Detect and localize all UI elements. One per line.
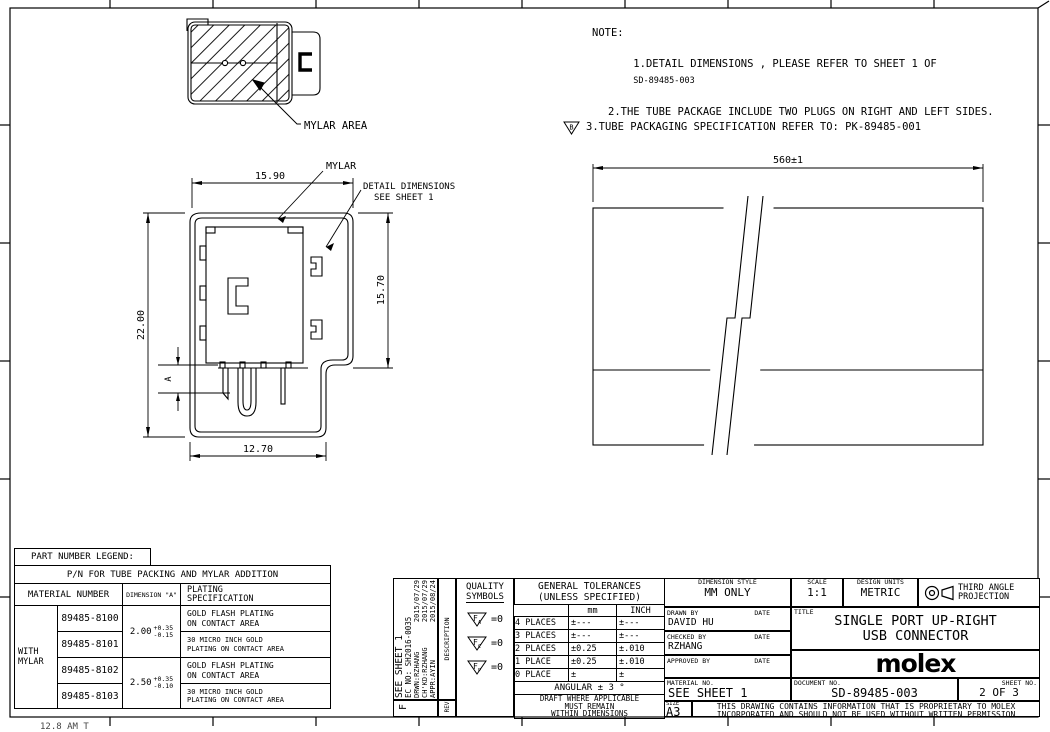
dimension-style-cell: DIMENSION STYLE MM ONLY xyxy=(664,578,791,607)
size-cell: SIZE A3 xyxy=(664,701,692,717)
document-no-value: SD-89485-003 xyxy=(792,687,957,699)
legend-plating-2: GOLD FLASH PLATING ON CONTACT AREA xyxy=(181,658,331,684)
design-units-cell: DESIGN UNITS METRIC xyxy=(843,578,918,607)
design-units-value: METRIC xyxy=(844,586,917,599)
plug-body xyxy=(292,32,320,95)
note-line-2: 2.THE TUBE PACKAGE INCLUDE TWO PLUGS ON … xyxy=(560,105,1038,121)
date-label: DATE xyxy=(754,633,770,641)
size-value: A3 xyxy=(665,707,691,717)
quality-symbols-box: QUALITY SYMBOLS F A =0 F C =0 F P =0 xyxy=(456,578,514,717)
scale-cell: SCALE 1:1 xyxy=(791,578,843,607)
legend-col-plating: PLATING SPECIFICATION xyxy=(181,584,331,606)
legend-part-2: 89485-8102 xyxy=(58,658,123,684)
drawing-title: SINGLE PORT UP-RIGHT USB CONNECTOR xyxy=(792,614,1039,644)
tolerance-col-mm: mm xyxy=(569,605,617,617)
legend-title-box: PART NUMBER LEGEND: xyxy=(14,548,151,566)
date-label: DATE xyxy=(754,657,770,665)
legend-dim-0: 2.00 +0.35-0.15 xyxy=(123,606,181,658)
dimension-style-label: DIMENSION STYLE xyxy=(665,579,790,586)
svg-text:B: B xyxy=(569,123,573,131)
mylar-leader-label: MYLAR xyxy=(326,161,357,172)
revision-desc-label: DESCRIPTION xyxy=(439,580,455,698)
pin-straight xyxy=(281,368,285,404)
revision-value: F xyxy=(397,700,437,714)
plug-c-slot xyxy=(300,54,312,70)
material-no-value: SEE SHEET 1 xyxy=(665,687,790,699)
tol-row-label: 4 PLACES xyxy=(515,617,569,630)
frame-ticks-right xyxy=(1038,125,1050,597)
dimension-style-value: MM ONLY xyxy=(665,586,790,599)
legend-part-0: 89485-8100 xyxy=(58,606,123,632)
revision-rev-label: REV xyxy=(440,700,455,714)
legend-subtitle: P/N FOR TUBE PACKING AND MYLAR ADDITION xyxy=(15,566,331,584)
projection-label: THIRD ANGLE PROJECTION xyxy=(958,584,1014,602)
tolerance-angular: ANGULAR ± 3 ° xyxy=(515,682,665,695)
molex-logo: molex xyxy=(876,649,956,678)
drawn-by-value: DAVID HU xyxy=(665,617,790,628)
mylar-area-view: MYLAR AREA xyxy=(175,10,390,140)
legend-col-material: MATERIAL NUMBER xyxy=(15,584,123,606)
notes-heading: NOTE: xyxy=(560,26,1038,42)
note-line-1-doc: SD-89485-003 xyxy=(633,76,694,86)
rev-ec-no: EC NO: SH2016-0035 xyxy=(405,580,413,698)
tube-view: 560±1 xyxy=(585,150,1000,465)
quality-symbol-row: F P =0 xyxy=(457,660,513,675)
tolerance-title: GENERAL TOLERANCES (UNLESS SPECIFIED) xyxy=(515,579,665,605)
break-mask xyxy=(703,190,775,458)
scale-label: SCALE xyxy=(792,579,842,586)
legend-dim-1: 2.50 +0.35-0.10 xyxy=(123,658,181,709)
legend-part-1: 89485-8101 xyxy=(58,632,123,658)
revision-flag-icon: B xyxy=(563,121,580,135)
projection-cell: THIRD ANGLE PROJECTION xyxy=(918,578,1040,607)
frame-ticks-top xyxy=(110,0,934,8)
date-label: DATE xyxy=(754,609,770,617)
mylar-area-label: MYLAR AREA xyxy=(304,120,368,132)
dim-top-label: 15.90 xyxy=(255,171,285,182)
quality-symbol-row: F C =0 xyxy=(457,636,513,651)
material-no-cell: MATERIAL NO. SEE SHEET 1 xyxy=(664,678,791,701)
quality-symbol-row: F A =0 xyxy=(457,612,513,627)
tube-length-dim: 560±1 xyxy=(773,155,803,166)
scale-value: 1:1 xyxy=(792,586,842,599)
legend-title: PART NUMBER LEGEND: xyxy=(31,552,134,562)
approved-by-cell: APPROVED BYDATE xyxy=(664,655,791,678)
tolerance-col-inch: INCH xyxy=(617,605,665,617)
legend-group: WITH MYLAR xyxy=(15,606,58,709)
pin-tapered xyxy=(223,368,228,399)
front-view: 15.90 22.00 15.70 12.70 A MYLAR DETAIL D… xyxy=(130,150,480,475)
outline-inner xyxy=(195,218,348,432)
dim-bottom-label: 12.70 xyxy=(243,444,273,455)
dim-a-label: A xyxy=(164,376,174,381)
third-angle-projection-icon xyxy=(923,583,955,603)
rev-drwn: DRWN:RZHANG2015/07/29 xyxy=(413,580,421,698)
shell xyxy=(206,227,303,363)
rev-chkd: CH'KD:RZHANG2015/07/29 xyxy=(421,580,429,698)
revision-rotated-content: SEE SHEET 1 EC NO: SH2016-0035 DRWN:RZHA… xyxy=(395,580,437,698)
disclaimer-line-2: INCORPORATED AND SHOULD NOT BE USED WITH… xyxy=(693,711,1039,719)
dim-right-label: 15.70 xyxy=(376,275,387,305)
tube-dim-lines xyxy=(593,164,983,202)
checked-by-value: RZHANG xyxy=(665,641,790,652)
logo-cell: molex xyxy=(791,650,1040,678)
dim-left-label: 22.00 xyxy=(136,310,147,340)
quality-title-1: QUALITY xyxy=(457,582,513,592)
legend-table: P/N FOR TUBE PACKING AND MYLAR ADDITION … xyxy=(14,565,331,709)
tol-row-label: 3 PLACES xyxy=(515,630,569,643)
footer-fragment: 12.8 AM T xyxy=(40,722,89,732)
quality-triangle-icon: F C xyxy=(467,636,489,651)
tol-row-label: 1 PLACE xyxy=(515,656,569,669)
svg-text:P: P xyxy=(478,668,481,674)
quality-triangle-icon: F A xyxy=(467,612,489,627)
engineering-drawing-sheet: { "accent_color": "#000000", "notes": { … xyxy=(0,0,1050,732)
approved-by-label: APPROVED BY xyxy=(667,657,710,665)
detail-label-2: SEE SHEET 1 xyxy=(374,193,434,203)
tol-row-label: 0 PLACE xyxy=(515,669,569,682)
drawn-by-cell: DRAWN BYDATE DAVID HU xyxy=(664,607,791,631)
document-no-cell: DOCUMENT NO. SD-89485-003 xyxy=(791,678,958,701)
legend-plating-3: 30 MICRO INCH GOLD PLATING ON CONTACT AR… xyxy=(181,684,331,709)
legend-part-3: 89485-8103 xyxy=(58,684,123,709)
sheet-no-cell: SHEET NO. 2 OF 3 xyxy=(958,678,1040,701)
center-channel xyxy=(228,278,248,314)
legend-plating-0: GOLD FLASH PLATING ON CONTACT AREA xyxy=(181,606,331,632)
frame-ticks-left xyxy=(0,125,10,597)
tolerance-draft-note: DRAFT WHERE APPLICABLE MUST REMAIN WITHI… xyxy=(515,695,665,719)
design-units-label: DESIGN UNITS xyxy=(844,579,917,586)
legend-plating-1: 30 MICRO INCH GOLD PLATING ON CONTACT AR… xyxy=(181,632,331,658)
notes-block: NOTE: 1.DETAIL DIMENSIONS , PLEASE REFER… xyxy=(560,26,1038,136)
legend-col-dimension: DIMENSION "A" xyxy=(123,584,181,606)
pin-u xyxy=(238,368,256,416)
tol-row-label: 2 PLACES xyxy=(515,643,569,656)
note-line-1: 1.DETAIL DIMENSIONS , PLEASE REFER TO SH… xyxy=(560,42,1038,105)
checked-by-cell: CHECKED BYDATE RZHANG xyxy=(664,631,791,655)
quality-triangle-icon: F P xyxy=(467,660,489,675)
note-line-3: B 3.TUBE PACKAGING SPECIFICATION REFER T… xyxy=(560,120,1038,136)
sheet-no-value: 2 OF 3 xyxy=(959,687,1039,698)
dimension-lines xyxy=(143,178,393,461)
svg-text:A: A xyxy=(478,620,481,626)
tube-outline xyxy=(593,208,983,445)
drawn-by-label: DRAWN BY xyxy=(667,609,698,617)
svg-text:C: C xyxy=(478,644,481,650)
disclaimer-cell: THIS DRAWING CONTAINS INFORMATION THAT I… xyxy=(692,701,1040,717)
rev-appr: APPR:AYIN2015/08/24 xyxy=(429,580,437,698)
tolerance-table: GENERAL TOLERANCES (UNLESS SPECIFIED) mm… xyxy=(514,578,665,719)
checked-by-label: CHECKED BY xyxy=(667,633,706,641)
detail-label-1: DETAIL DIMENSIONS xyxy=(363,182,455,192)
quality-title-2: SYMBOLS xyxy=(466,592,504,603)
title-cell: TITLE SINGLE PORT UP-RIGHT USB CONNECTOR xyxy=(791,607,1040,650)
